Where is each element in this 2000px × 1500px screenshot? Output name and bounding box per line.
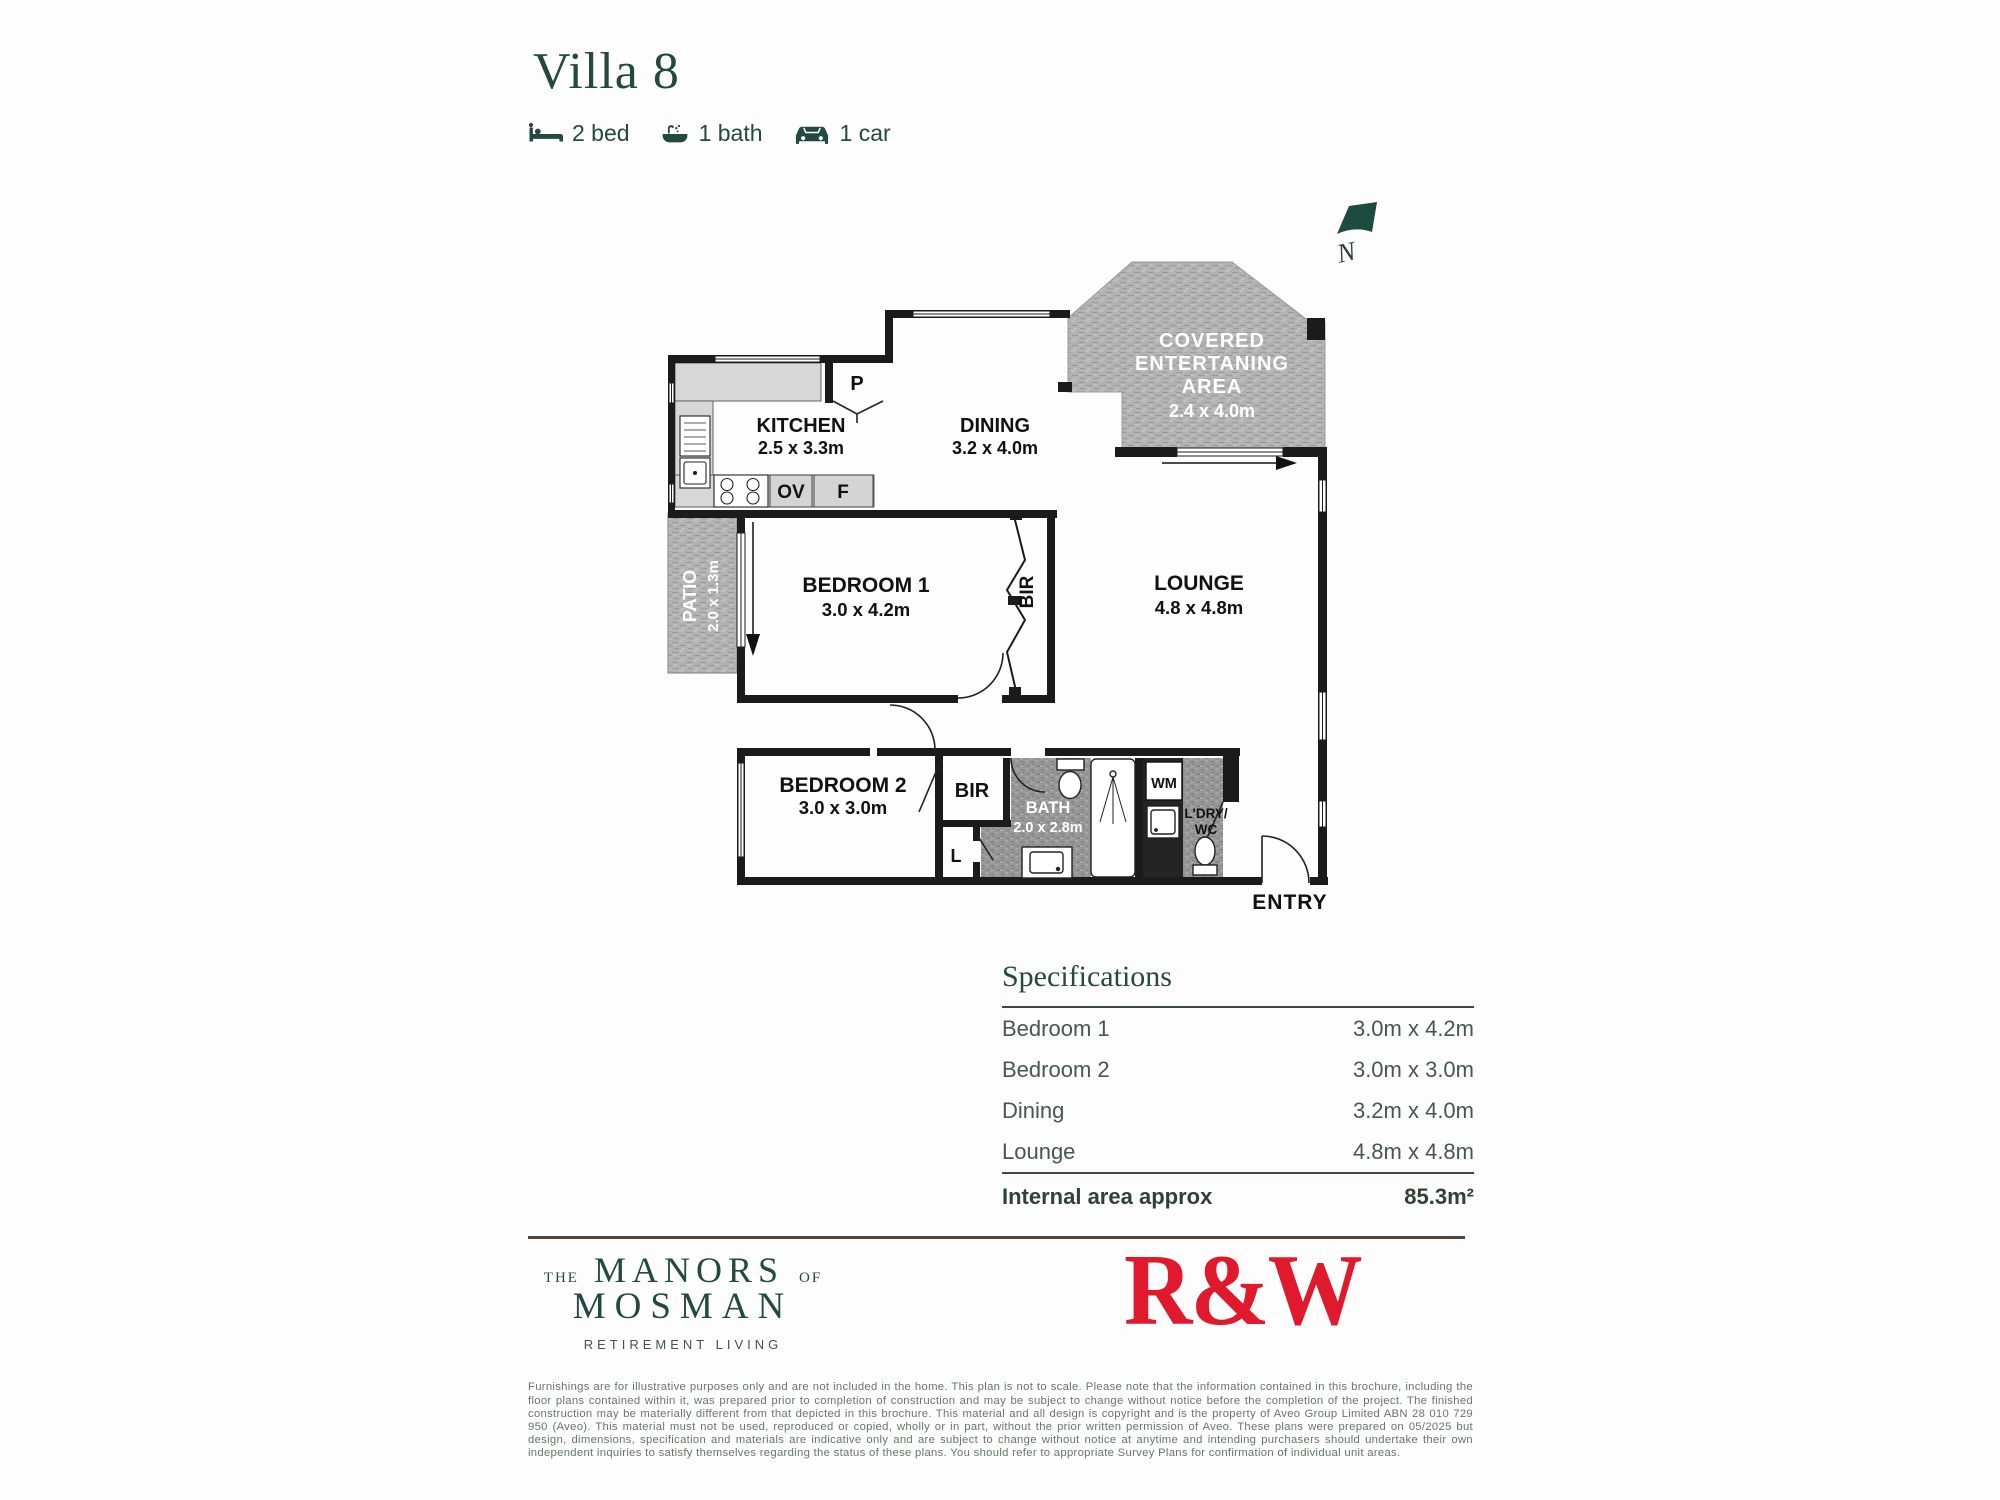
spec-row-bedroom1: Bedroom 1 3.0m x 4.2m — [1002, 1008, 1474, 1049]
covered-area-line1: COVERED — [1159, 330, 1265, 352]
kitchen-dims: 2.5 x 3.3m — [758, 438, 844, 458]
shower — [1091, 759, 1135, 877]
spec-total-row: Internal area approx 85.3m² — [1002, 1174, 1474, 1210]
bedroom1-label: BEDROOM 1 — [802, 574, 930, 597]
feature-bath: 1 bath — [660, 120, 763, 147]
oven-label: OV — [777, 482, 805, 503]
spec-value: 3.0m x 3.0m — [1353, 1057, 1474, 1083]
bedroom1-dims: 3.0 x 4.2m — [822, 599, 910, 620]
spec-label: Dining — [1002, 1098, 1064, 1124]
manors-of-mosman-logo: THE MANORS OF MOSMAN RETIREMENT LIVING — [528, 1252, 838, 1352]
spec-label: Lounge — [1002, 1139, 1075, 1165]
north-indicator: N — [1333, 202, 1377, 269]
spec-label: Bedroom 1 — [1002, 1016, 1110, 1042]
specifications-title: Specifications — [1002, 960, 1474, 994]
laundry-label-line2: WC — [1195, 822, 1218, 837]
feature-car: 1 car — [793, 120, 891, 147]
patio-label: PATIO — [680, 570, 700, 622]
covered-area-line3: AREA — [1182, 376, 1243, 398]
specifications-panel: Specifications Bedroom 1 3.0m x 4.2m Bed… — [1002, 960, 1474, 1210]
spec-label: Bedroom 2 — [1002, 1057, 1110, 1083]
brand-main: MANORS — [594, 1250, 784, 1290]
cooktop — [714, 475, 768, 507]
spec-value: 3.0m x 4.2m — [1353, 1016, 1474, 1042]
covered-area-dims: 2.4 x 4.0m — [1169, 401, 1255, 421]
laundry-label-line1: L'DRY/ — [1184, 806, 1227, 821]
spec-value: 4.8m x 4.8m — [1353, 1139, 1474, 1165]
floor-plan: KITCHEN 2.5 x 3.3m DINING 3.2 x 4.0m P O… — [640, 180, 1420, 950]
brand-tagline: RETIREMENT LIVING — [528, 1337, 838, 1352]
laundry-tub — [1147, 806, 1179, 838]
rw-logo: R&W — [1124, 1240, 1361, 1342]
brand-line1: THE MANORS OF — [528, 1252, 838, 1288]
lounge-dims: 4.8 x 4.8m — [1155, 597, 1243, 618]
bir2-label: BIR — [955, 780, 990, 802]
dining-dims: 3.2 x 4.0m — [952, 438, 1038, 458]
lounge-label: LOUNGE — [1154, 572, 1244, 595]
feature-bath-label: 1 bath — [699, 120, 763, 147]
page-title: Villa 8 — [533, 42, 680, 101]
spec-row-dining: Dining 3.2m x 4.0m — [1002, 1090, 1474, 1131]
feature-bed: 2 bed — [527, 120, 630, 147]
spec-row-lounge: Lounge 4.8m x 4.8m — [1002, 1131, 1474, 1172]
patio-dims: 2.0 x 1.3m — [705, 560, 722, 632]
patio-floor — [668, 513, 737, 673]
brand-line2: MOSMAN — [528, 1288, 838, 1327]
wc-toilet — [1193, 837, 1217, 875]
brand-post: OF — [799, 1270, 822, 1286]
bedroom2-label: BEDROOM 2 — [779, 774, 906, 797]
covered-area-line2: ENTERTANING — [1135, 353, 1289, 375]
linen-label: L — [951, 846, 962, 866]
kitchen-label: KITCHEN — [757, 415, 846, 437]
entry-label: ENTRY — [1252, 891, 1327, 914]
feature-bed-label: 2 bed — [572, 120, 630, 147]
disclaimer-text: Furnishings are for illustrative purpose… — [528, 1381, 1473, 1460]
vanity — [1022, 847, 1072, 878]
bath-label: BATH — [1026, 799, 1071, 817]
car-icon — [793, 120, 831, 147]
spec-row-bedroom2: Bedroom 2 3.0m x 3.0m — [1002, 1049, 1474, 1090]
spec-value: 3.2m x 4.0m — [1353, 1098, 1474, 1124]
spec-total-value: 85.3m² — [1404, 1184, 1474, 1210]
spec-total-label: Internal area approx — [1002, 1184, 1212, 1210]
pantry-label: P — [850, 373, 863, 395]
bath-dims: 2.0 x 2.8m — [1013, 820, 1082, 836]
fridge-label: F — [837, 482, 849, 503]
bath-icon — [660, 120, 690, 147]
brochure-page: Villa 8 2 bed 1 bath — [0, 0, 2000, 1500]
bed-icon — [527, 120, 563, 147]
feature-summary: 2 bed 1 bath 1 car — [527, 120, 891, 147]
north-label: N — [1333, 235, 1360, 269]
wm-label: WM — [1151, 776, 1177, 792]
feature-car-label: 1 car — [840, 120, 891, 147]
dining-label: DINING — [960, 415, 1030, 437]
north-arrow-icon — [1337, 202, 1377, 234]
bedroom2-dims: 3.0 x 3.0m — [799, 797, 887, 818]
brand-pre: THE — [544, 1270, 579, 1286]
kitchen-sink — [680, 416, 710, 488]
bir1-label: BIR — [1017, 575, 1038, 608]
